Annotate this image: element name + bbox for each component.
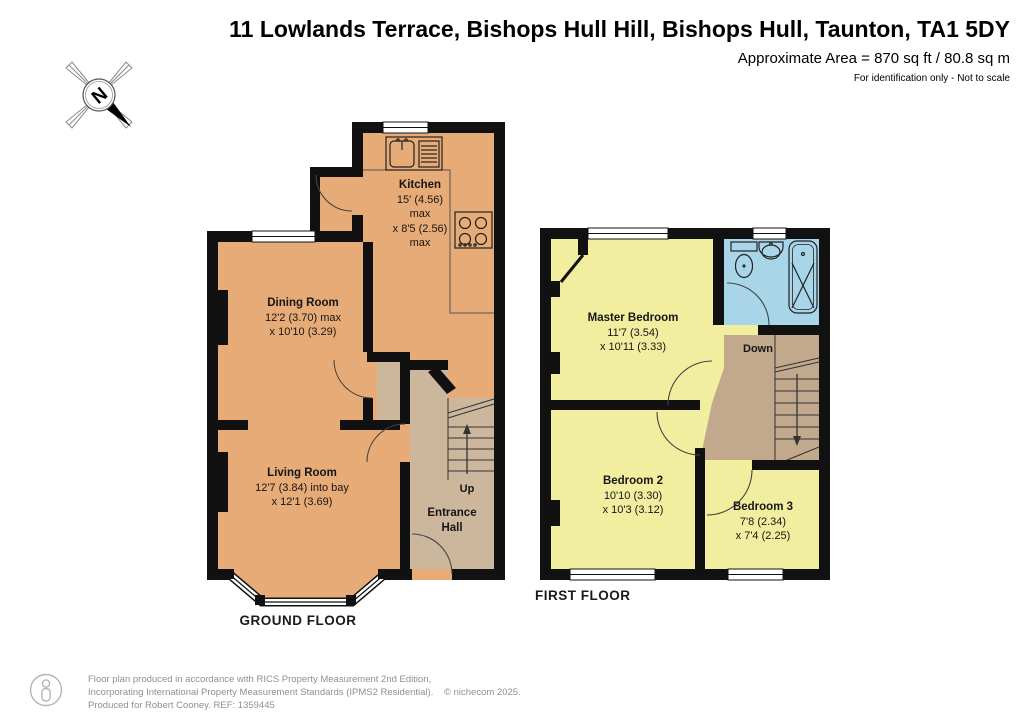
footer-line1: Floor plan produced in accordance with R… [88, 674, 521, 687]
room-label-bedroom2: Bedroom 2 10'10 (3.30) x 10'3 (3.12) [563, 474, 703, 518]
room-label-hall: Entrance Hall [402, 506, 502, 536]
stairs-down-label: Down [730, 343, 786, 355]
footer: Floor plan produced in accordance with R… [88, 674, 521, 712]
room-label-dining: Dining Room 12'2 (3.70) max x 10'10 (3.2… [228, 296, 378, 340]
room-label-living: Living Room 12'7 (3.84) into bay x 12'1 … [227, 466, 377, 510]
room-label-master: Master Bedroom 11'7 (3.54) x 10'11 (3.33… [553, 311, 713, 355]
stairs-up-label: Up [447, 483, 487, 495]
copyright: © nichecom 2025. [436, 687, 521, 698]
footer-logo-icon [28, 672, 64, 708]
floorplan-page: 11 Lowlands Terrace, Bishops Hull Hill, … [0, 0, 1024, 724]
floorplan-graphics [0, 0, 1024, 724]
footer-line3: Produced for Robert Cooney. REF: 1359445 [88, 700, 521, 713]
footer-line2: Incorporating International Property Mea… [88, 687, 521, 700]
ground-floor-title: GROUND FLOOR [217, 613, 379, 628]
room-label-kitchen: Kitchen 15' (4.56) max x 8'5 (2.56) max [355, 178, 485, 250]
first-floor-title: FIRST FLOOR [535, 588, 631, 603]
room-label-bedroom3: Bedroom 3 7'8 (2.34) x 7'4 (2.25) [697, 500, 829, 544]
